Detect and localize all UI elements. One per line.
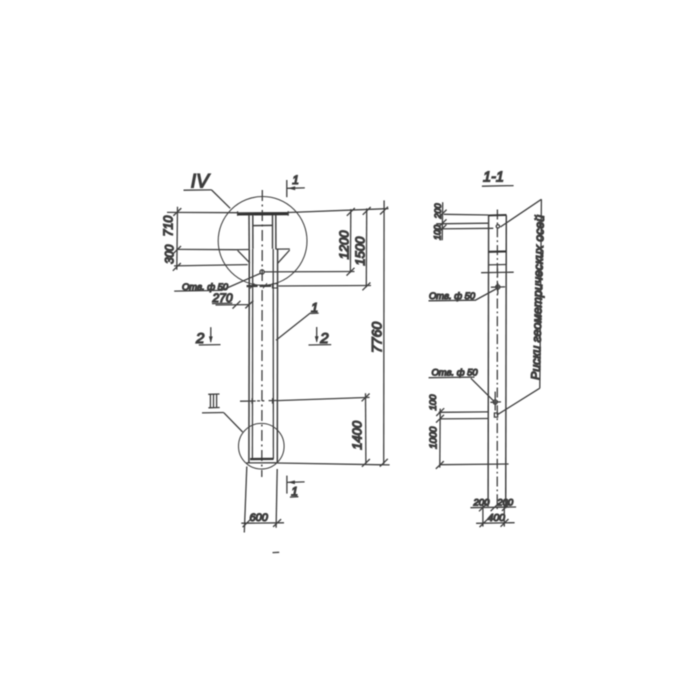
svg-text:710: 710: [162, 216, 176, 237]
svg-text:1400: 1400: [349, 420, 364, 450]
svg-text:400: 400: [488, 512, 506, 524]
svg-text:IV: IV: [191, 171, 211, 192]
svg-text:300: 300: [165, 244, 177, 264]
svg-text:100: 100: [432, 225, 442, 240]
svg-text:Отв. ф 50: Отв. ф 50: [429, 290, 476, 301]
svg-text:200: 200: [496, 497, 514, 508]
svg-text:200: 200: [433, 203, 443, 219]
svg-text:1-1: 1-1: [483, 170, 504, 186]
svg-text:1000: 1000: [429, 426, 440, 449]
svg-text:Риски геометрических осей: Риски геометрических осей: [529, 215, 547, 381]
svg-text:1500: 1500: [352, 236, 367, 266]
svg-text:1200: 1200: [336, 230, 351, 260]
svg-text:7760: 7760: [369, 322, 385, 353]
svg-text:100: 100: [428, 394, 439, 411]
svg-text:600: 600: [250, 512, 269, 524]
svg-text:200: 200: [473, 497, 491, 508]
svg-text:1: 1: [292, 173, 299, 187]
svg-text:Отв. ф 50: Отв. ф 50: [432, 367, 479, 378]
